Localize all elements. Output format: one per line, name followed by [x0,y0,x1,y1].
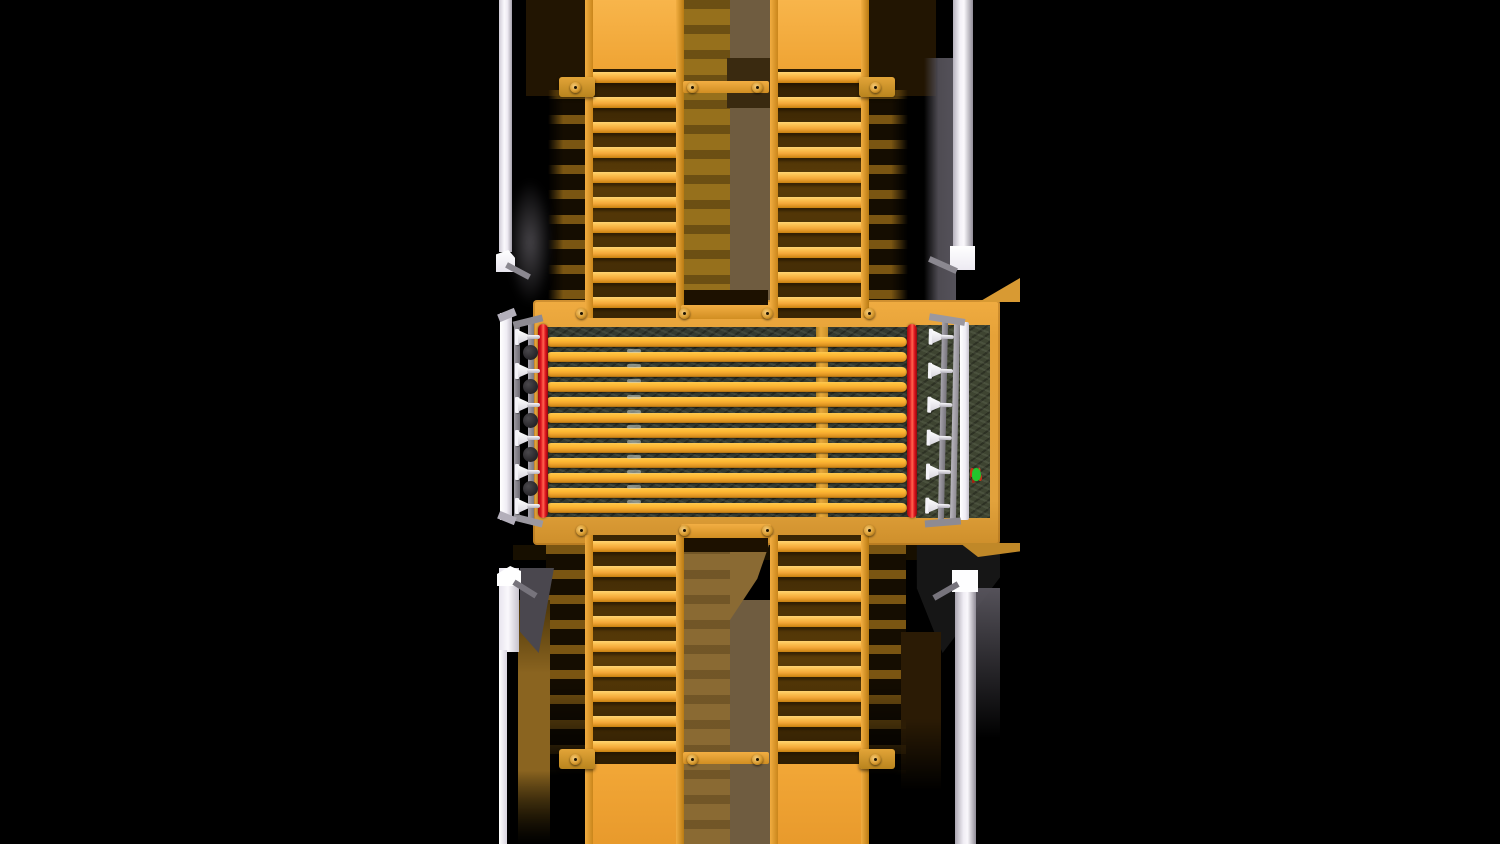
ramp-rung [772,541,867,552]
shadow-column-top-center-gray [730,0,772,302]
slat-joint-clip [627,395,641,399]
hinge-pin [870,754,881,765]
scene [0,0,1500,844]
ramp-rung [587,616,682,627]
ramp-rung [587,566,682,577]
ramp-rung [587,172,682,183]
ramp-rung [587,147,682,158]
hinge-pin [870,82,881,93]
ramp-rung [772,97,867,108]
hinge-pin [570,754,581,765]
roller-slat [546,352,907,362]
hinge-pin [864,525,875,536]
ramp-rung [772,147,867,158]
ramp-rail [676,0,684,318]
slat-joint-clip [627,349,641,353]
ramp-rail [770,0,778,318]
shadow-column-bottom-center-gray [730,600,770,844]
ramp-rung [587,716,682,727]
shadow-stripes-top-left [548,90,586,302]
slat-joint-clip [627,440,641,444]
roller-slat [546,413,907,423]
shadow-column-top-center-tan [683,0,730,302]
ramp-rung [587,641,682,652]
spray-nozzle-icon [925,498,951,515]
nozzle-stem [939,402,952,406]
spray-nozzle-icon [515,498,541,514]
shadow-column-bottom-center-tan [683,545,730,844]
nozzle-stem [527,470,540,474]
hinge-pin [762,308,773,319]
corner-post-bottom-right [955,572,976,844]
spray-nozzle-icon [515,363,541,379]
ramp-rung [772,122,867,133]
corner-post-top-right [953,0,973,248]
hinge-pin [576,525,587,536]
roller-slat [546,382,907,392]
hinge-pin [679,525,690,536]
nozzle-stem [527,504,540,508]
ramp-rung [772,222,867,233]
ramp-rung [587,97,682,108]
roller-slat [546,443,907,453]
slat-joint-clip [627,500,641,504]
corner-post-top-left [499,0,512,252]
ramp-rung [772,72,867,83]
ramp-ladder [590,69,679,318]
ramp-bottom-left [585,535,684,844]
hinge-pin [762,525,773,536]
spray-nozzle-icon [928,362,954,379]
ramp-plate [772,764,867,844]
roller-slat [546,337,907,347]
ramp-rung [772,616,867,627]
logo-decal [972,468,981,481]
slat-joint-clip [627,470,641,474]
slat-joint-clip [627,379,641,383]
ramp-rail [861,535,869,844]
roller-slat [546,503,907,513]
roller-slat [546,488,907,498]
hinge-pin [576,308,587,319]
roller-slat [546,473,907,483]
shadow-stripes-top-right [866,90,908,302]
ramp-rung [772,566,867,577]
deck-corner-wedge-top-right [970,278,1020,302]
spray-nozzle-icon [515,430,541,446]
shadow-brown-bottom-right [901,632,941,790]
ramp-rung [772,641,867,652]
ramp-rung [587,222,682,233]
ramp-rung [772,691,867,702]
spray-nozzle-icon [926,464,952,481]
ramp-ladder [775,535,864,764]
roller-slat [546,367,907,377]
ramp-rung [587,272,682,283]
ramp-bottom-right [770,535,869,844]
slat-joint-clip [627,410,641,414]
wash-platform [513,300,1000,545]
ramp-rung [587,72,682,83]
hinge-pin [752,82,763,93]
shadow-gray-bottom-right [975,588,1000,738]
ramp-ladder [775,69,864,318]
spray-rail-right [923,320,967,523]
hinge-pin [864,308,875,319]
spray-nozzle-icon [515,329,541,345]
roller-slat [546,458,907,468]
ramp-rung [587,666,682,677]
shadow-gray-glow-top-left [508,180,552,305]
nozzle-column-left [515,329,541,513]
ramp-plate [587,764,682,844]
ramp-rail [585,0,593,318]
spray-nozzle-icon [927,396,953,413]
nozzle-stem [938,470,951,474]
nozzle-stem [527,436,540,440]
slat-joint-clip [627,485,641,489]
ramp-rung [587,197,682,208]
roller-slat [546,428,907,438]
nozzle-stem [941,335,954,339]
ramp-top-right [770,0,869,318]
ramp-rung [587,297,682,308]
spray-nozzle-icon [929,329,955,346]
ramp-rung [587,691,682,702]
left-white-beam [500,313,512,520]
ramp-rung [772,297,867,308]
ramp-rung [587,122,682,133]
ramp-top-left [585,0,684,318]
corner-post-bottom-left-lower [499,650,507,844]
hinge-pin [570,82,581,93]
ramp-rung [587,741,682,752]
nozzle-stem [527,369,540,373]
ramp-rung [772,197,867,208]
hinge-backing-bottom [684,537,768,552]
slat-layer [546,337,914,517]
spray-nozzle-icon [926,430,952,447]
hinge-pin [687,82,698,93]
slat-joint-clip [627,425,641,429]
spray-rail-left [513,320,545,522]
nozzle-stem [527,335,540,339]
roller-slat [546,397,907,407]
ramp-rail [676,535,684,844]
ramp-rung [772,716,867,727]
ramp-rail [770,535,778,844]
ramp-rung [772,172,867,183]
nozzle-stem [937,504,950,508]
spray-nozzle-icon [515,397,541,413]
ramp-rung [587,541,682,552]
nozzle-stem [939,436,952,440]
red-guard-bar-right [907,324,917,518]
slat-joint-clip [627,455,641,459]
hinge-pin [752,754,763,765]
nozzle-column-right [925,329,955,514]
ramp-rung [772,666,867,677]
ramp-plate [587,0,682,69]
hinge-crossbar-deck-bottom [681,524,771,538]
ramp-plate [772,0,867,69]
hinge-pin [687,754,698,765]
slat-joint-clip [627,364,641,368]
hinge-pin [679,308,690,319]
ramp-rail [585,535,593,844]
ramp-rung [772,247,867,258]
nozzle-stem [940,369,953,373]
ramp-rung [772,272,867,283]
ramp-rung [772,591,867,602]
ramp-ladder [590,535,679,764]
hinge-crossbar-deck-top [681,305,771,319]
ramp-rung [587,247,682,258]
ramp-rung [587,591,682,602]
ramp-rung [772,741,867,752]
nozzle-stem [527,403,540,407]
ramp-rail [861,0,869,318]
spray-nozzle-icon [515,464,541,480]
